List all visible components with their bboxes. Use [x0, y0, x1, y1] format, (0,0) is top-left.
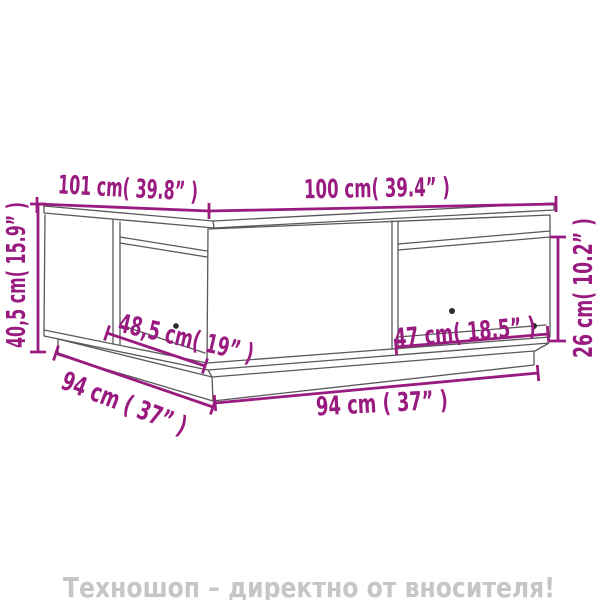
dim-label-base-width-bottom: 94 cm ( 37” )	[315, 386, 448, 423]
product-dimension-diagram: 101 cm( 39.8” ) 100 cm( 39.4” ) 40,5 cm(…	[0, 0, 600, 600]
dim-label-width-top: 100 cm( 39.4” )	[304, 173, 451, 206]
dim-label-compartment-height-right: 26 cm( 10.2” )	[569, 218, 599, 358]
dim-line-compartment-height-right	[550, 237, 566, 341]
footer-banner-text: Техношоп – директно от вносителя!	[63, 571, 555, 600]
right-drawer-band	[398, 231, 550, 250]
diagram-canvas: 101 cm( 39.8” ) 100 cm( 39.4” ) 40,5 cm(…	[0, 0, 600, 600]
dimension-labels: 101 cm( 39.8” ) 100 cm( 39.4” ) 40,5 cm(…	[2, 170, 599, 441]
dim-label-compartment-width-right: 47 cm( 18.5” )	[393, 312, 537, 354]
dim-label-depth-top: 101 cm( 39.8” )	[57, 170, 198, 207]
knob-dot-right-compartment-1	[449, 308, 455, 314]
left-drawer-band	[120, 237, 207, 257]
coffee-table-wireframe	[44, 203, 554, 401]
dim-label-height-left: 40,5 cm( 15.9” )	[2, 202, 32, 348]
